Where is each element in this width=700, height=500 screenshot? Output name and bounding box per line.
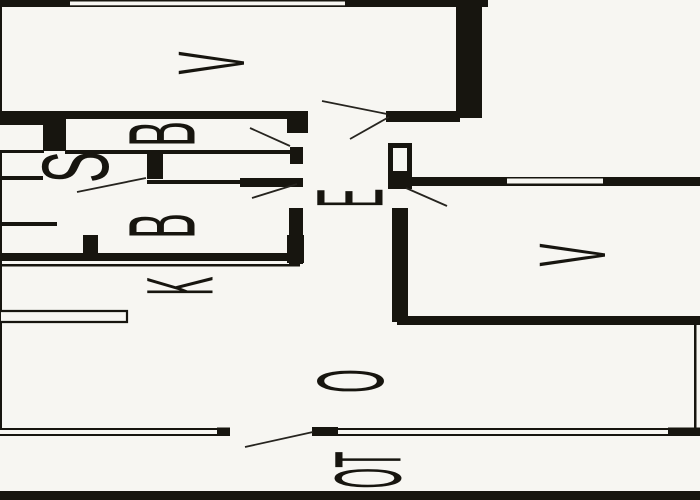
room-label-b1: B xyxy=(110,121,215,146)
wall-s-stub xyxy=(147,150,163,179)
floor-plan: V B S B K E O V OT xyxy=(0,0,700,500)
wall-v2-left xyxy=(392,208,408,322)
terrace-mid-post xyxy=(312,427,338,436)
wall-b2-k-end xyxy=(287,235,304,263)
kitchen-counter xyxy=(1,311,127,322)
wall-hall-left-a xyxy=(290,147,303,164)
room-label-ot: OT xyxy=(315,452,421,489)
wall-b2-k xyxy=(0,253,292,261)
niche xyxy=(0,125,43,150)
shaft-inner xyxy=(393,148,407,171)
room-label-v1: V xyxy=(159,51,265,74)
room-label-e: E xyxy=(297,188,403,207)
terrace-line-left-b xyxy=(0,434,230,436)
wall-b2-k-line xyxy=(0,264,300,267)
b2-stub xyxy=(83,235,98,254)
room-label-k: K xyxy=(127,276,233,295)
room-label-v2: V xyxy=(520,243,626,266)
window-top xyxy=(70,2,345,6)
window-v2 xyxy=(507,179,603,184)
b2-closet-line xyxy=(0,222,57,226)
terrace-line-right-b xyxy=(338,434,670,436)
wall-entry-top xyxy=(386,111,460,122)
border-bottom xyxy=(0,491,700,500)
wall-upper-right xyxy=(456,0,482,118)
wall-b2-top-thin xyxy=(147,180,240,184)
wall-v2-bottom xyxy=(397,316,700,325)
room-label-o: O xyxy=(297,369,403,393)
wall-left-stub xyxy=(43,111,66,151)
wall-door-stub xyxy=(287,111,308,133)
terrace-line-right-a xyxy=(338,428,670,430)
edge-line-left-a xyxy=(0,7,2,111)
edge-line-left-b xyxy=(0,125,2,428)
room-label-s: S xyxy=(22,151,128,183)
terrace-line-left-a xyxy=(0,428,230,430)
terrace-cap-left xyxy=(217,428,230,437)
edge-line-right xyxy=(694,325,697,429)
room-label-b2: B xyxy=(110,213,215,238)
floor-plan-drawing: V B S B K E O V OT xyxy=(0,0,700,500)
